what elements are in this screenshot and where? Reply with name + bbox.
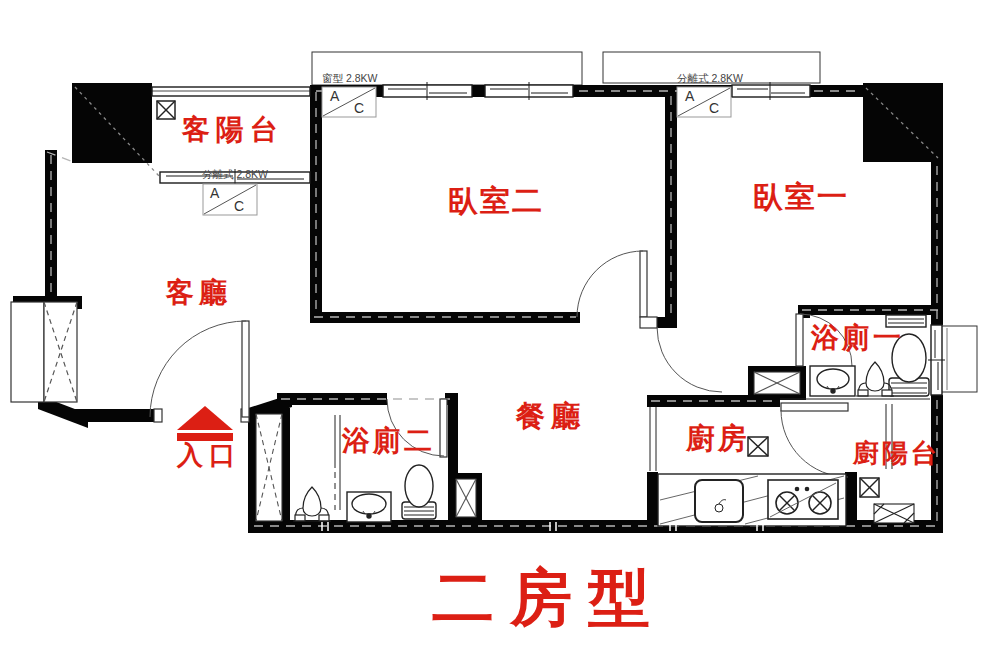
room-label-kitchen-balcony: 廚陽台 [853, 440, 940, 466]
entrance-arrow [177, 406, 233, 441]
ac-label-bedroom2: 窗型 2.8KW [322, 73, 377, 84]
wall-entry-left [72, 409, 161, 422]
room-label-living-balcony: 客陽台 [182, 116, 284, 144]
faucet-icon [856, 362, 894, 396]
bay-window-glass [11, 302, 44, 402]
ac-label-bedroom1: 分離式 2.8KW [677, 73, 743, 84]
light-icon [860, 478, 879, 497]
ac-letter-c: C [234, 199, 244, 213]
room-label-bath-2: 浴廁二 [342, 427, 435, 455]
washer-icon [874, 504, 914, 523]
kitchen-sink-icon [695, 480, 743, 522]
wall-kitchen-left [647, 472, 658, 527]
bath2-door-leaf [440, 399, 447, 457]
light-icon [157, 101, 175, 119]
faucet-icon [293, 487, 331, 521]
bedroom2-door-leaf [640, 251, 647, 317]
ac-letter-c: C [709, 101, 719, 115]
room-label-bath-1: 浴廁一 [811, 324, 904, 352]
bedroom2-door-arc [577, 251, 643, 317]
plan-title: 二房型 [432, 567, 666, 629]
balcony-rail [152, 87, 310, 96]
kitchen-balcony-door-leaf [781, 403, 848, 411]
entrance-arrow-triangle [177, 406, 233, 430]
toilet-icon [402, 465, 436, 519]
room-label-dining: 餐廳 [516, 402, 586, 431]
entry-door-arc [150, 321, 246, 417]
room-label-kitchen: 廚房 [686, 424, 750, 453]
walls [13, 83, 943, 533]
wall-kitchen-right [845, 472, 857, 527]
entry-door-leaf [242, 321, 249, 417]
bedroom1-door-leaf [640, 317, 657, 328]
ledge-right [941, 326, 977, 392]
ac-label-balcony: 分離式 2.8KW [202, 169, 268, 180]
room-label-bedroom-2: 臥室二 [448, 186, 544, 216]
ac-letter-a: A [685, 89, 694, 103]
ac-letter-a: A [210, 186, 219, 200]
bay-window [11, 302, 77, 402]
sink-icon [810, 366, 855, 396]
entry-door-stop-left [154, 409, 162, 422]
wall-top-post [472, 85, 485, 97]
room-label-living-room: 客廳 [166, 279, 232, 307]
room-label-bedroom-1: 臥室一 [753, 182, 849, 212]
wall-corner-block-topright [863, 83, 943, 162]
light-icon [748, 437, 768, 456]
ac-letter-a: A [330, 89, 339, 103]
floor-plan: 客陽台 客廳 臥室二 臥室一 浴廁二 浴廁一 餐廳 廚房 廚陽台 入口 分離式 … [0, 0, 986, 660]
ac-letter-c: C [354, 101, 364, 115]
bedroom1-door-arc [657, 327, 722, 392]
bath1-door-leaf [796, 314, 803, 366]
sink-icon [347, 492, 391, 522]
kitchen-balcony-door-arc [781, 410, 848, 477]
wall-corner-block-topleft [72, 83, 152, 163]
entrance-label: 入口 [177, 442, 241, 468]
wall-central [665, 90, 677, 318]
stove-icon [768, 480, 838, 519]
window-bedroom1 [732, 85, 810, 97]
